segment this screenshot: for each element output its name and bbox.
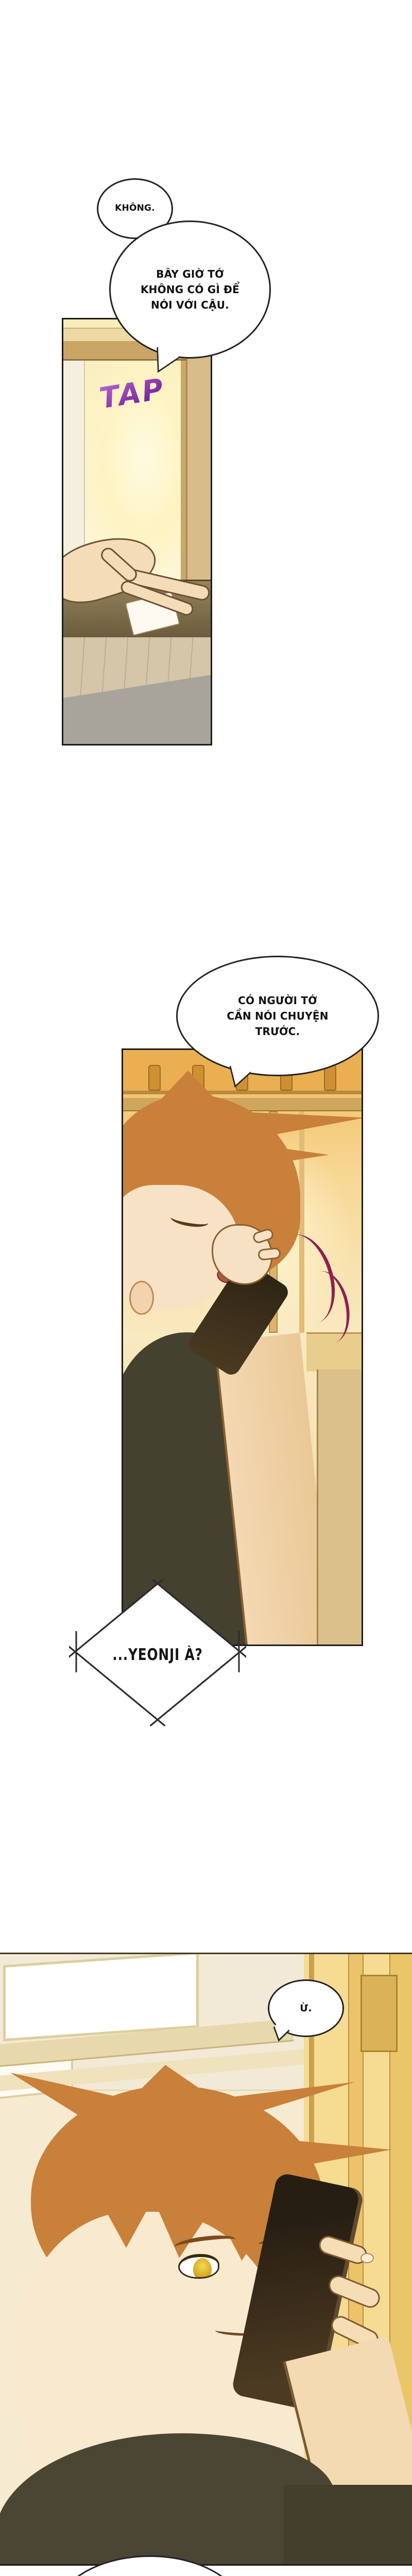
panel-phone-drop: TAP — [62, 318, 212, 745]
bubble-text: NÓI VỚI CẬU. — [151, 297, 229, 313]
speech-bubble-co-nguoi: CÓ NGƯỜI TỚ CẦN NÓI CHUYỆN TRƯỚC. — [176, 956, 379, 1076]
character-shoulder — [283, 2485, 412, 2566]
bubble-text: CÓ NGƯỜI TỚ — [238, 993, 317, 1008]
bubble-text: TRƯỚC. — [255, 1024, 300, 1039]
hanging-frame — [360, 1975, 398, 2052]
panel-phone-call — [122, 1048, 363, 1646]
character-ear — [129, 1281, 154, 1315]
iris — [193, 2258, 212, 2279]
bottle — [148, 1065, 161, 1091]
bubble-text: KHÔNG CÓ GÌ ĐỂ — [141, 282, 239, 297]
bubble-text: KHÔNG. — [115, 202, 155, 215]
amber-eye — [178, 2254, 219, 2279]
webtoon-page: KHÔNG. BÂY GIỜ TỚ KHÔNG CÓ GÌ ĐỂ NÓI VỚI… — [0, 0, 412, 2576]
bubble-text: ...YEONJI À? — [87, 1580, 228, 1730]
hanging-jacket — [317, 1369, 363, 1646]
bubble-text: CẦN NÓI CHUYỆN — [227, 1008, 328, 1024]
panel-closeup-call — [0, 1953, 412, 2566]
bubble-text: Ừ. — [300, 2001, 312, 2016]
skylight — [3, 1953, 199, 2041]
radio-voice-bubble-yeonji: ...YEONJI À? — [69, 1580, 246, 1730]
fingernail — [360, 2253, 374, 2263]
bubble-text: BÂY GIỜ TỚ — [156, 266, 224, 282]
speech-bubble-bay-gio: BÂY GIỜ TỚ KHÔNG CÓ GÌ ĐỂ NÓI VỚI CẬU. — [109, 221, 271, 359]
